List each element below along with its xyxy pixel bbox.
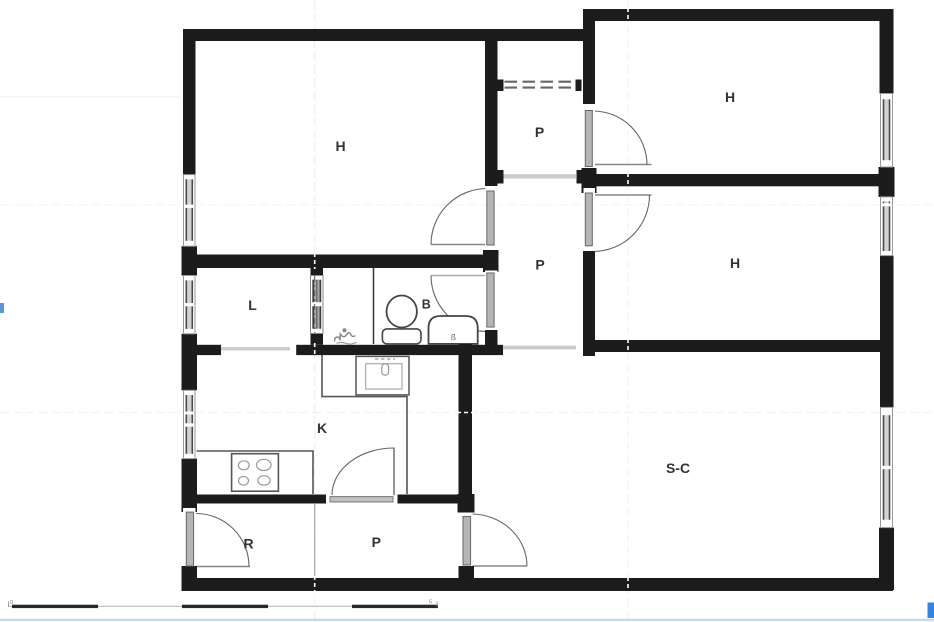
svg-text:S-C: S-C — [666, 460, 690, 476]
svg-text:5: 5 — [429, 600, 432, 606]
svg-text:H: H — [725, 89, 735, 105]
svg-text:K: K — [317, 420, 327, 436]
svg-text:P: P — [535, 257, 544, 273]
svg-text:P: P — [372, 534, 381, 550]
svg-text:H: H — [335, 138, 345, 154]
svg-text:ß: ß — [451, 333, 456, 342]
svg-text:P: P — [535, 124, 544, 140]
svg-text:L: L — [248, 297, 257, 313]
svg-text:B: B — [422, 298, 431, 312]
svg-text:0: 0 — [10, 600, 13, 606]
svg-text:R: R — [243, 536, 253, 552]
svg-text:H: H — [730, 255, 740, 271]
